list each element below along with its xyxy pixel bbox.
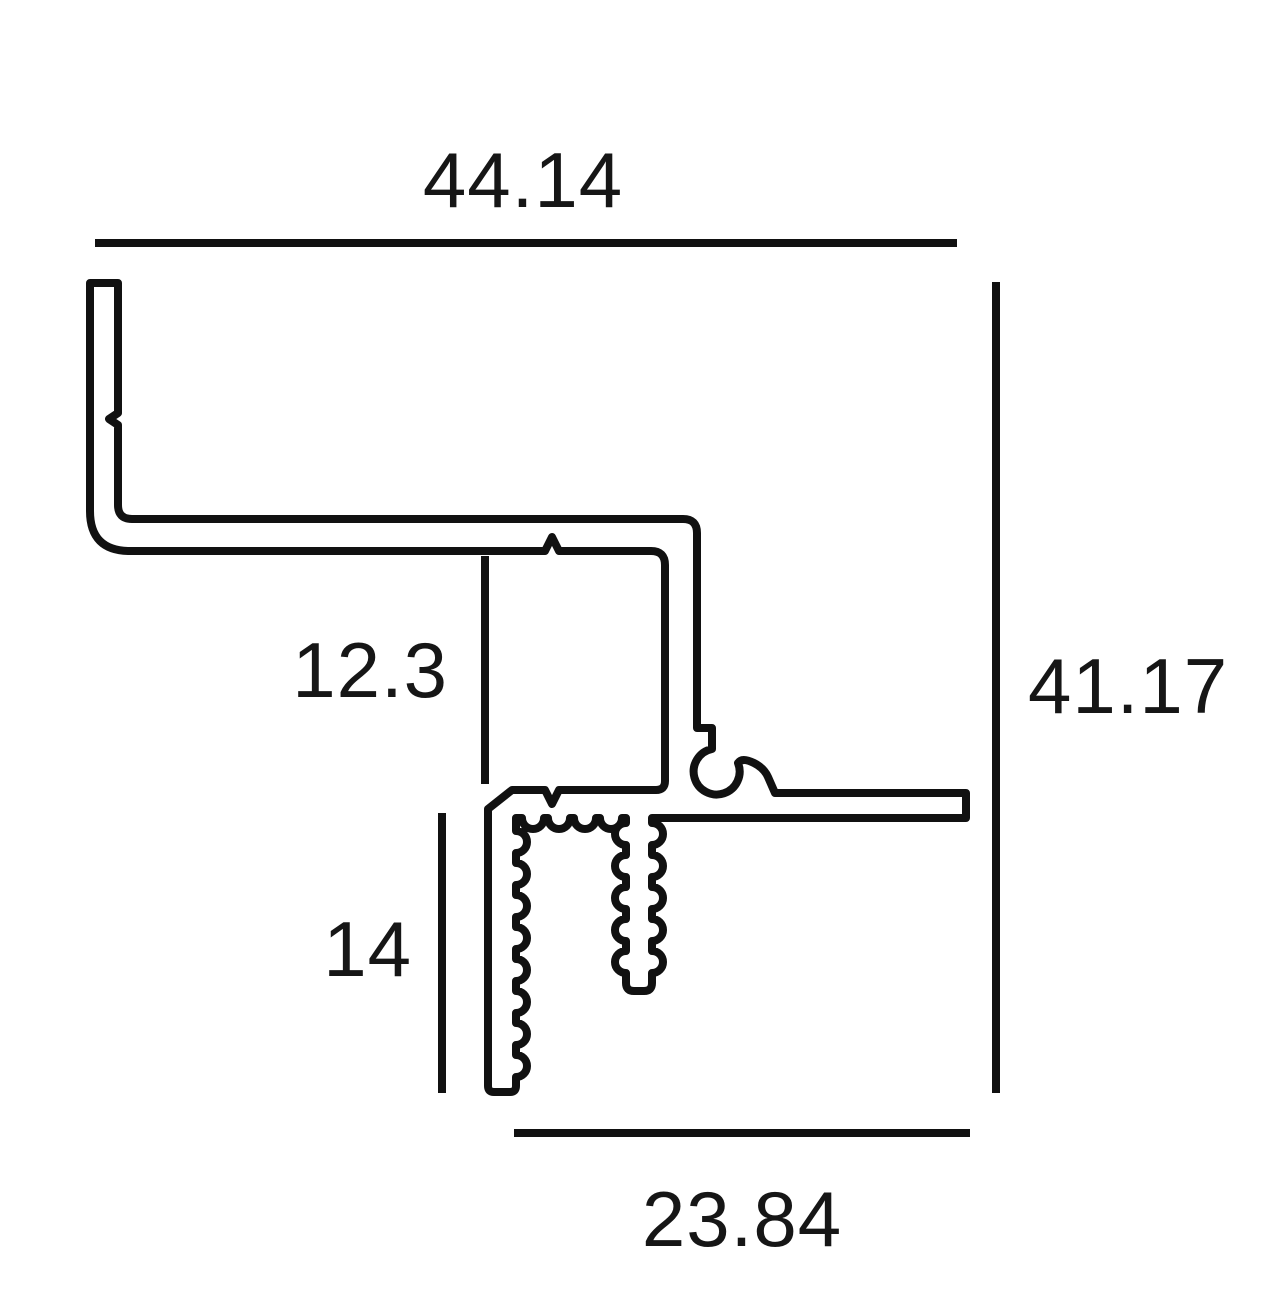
dimension-label-top-width: 44.14 [423,136,623,224]
dimension-label-bottom-width: 23.84 [642,1175,842,1263]
dimension-label-channel-depth: 14 [323,905,412,993]
dimension-label-step-height: 12.3 [292,626,448,714]
technical-drawing-canvas: 44.14 41.17 12.3 14 23.84 [0,0,1280,1293]
profile-outline [90,283,966,1092]
dimension-label-right-height: 41.17 [1028,642,1228,730]
profile-drawing-svg: 44.14 41.17 12.3 14 23.84 [0,0,1280,1293]
